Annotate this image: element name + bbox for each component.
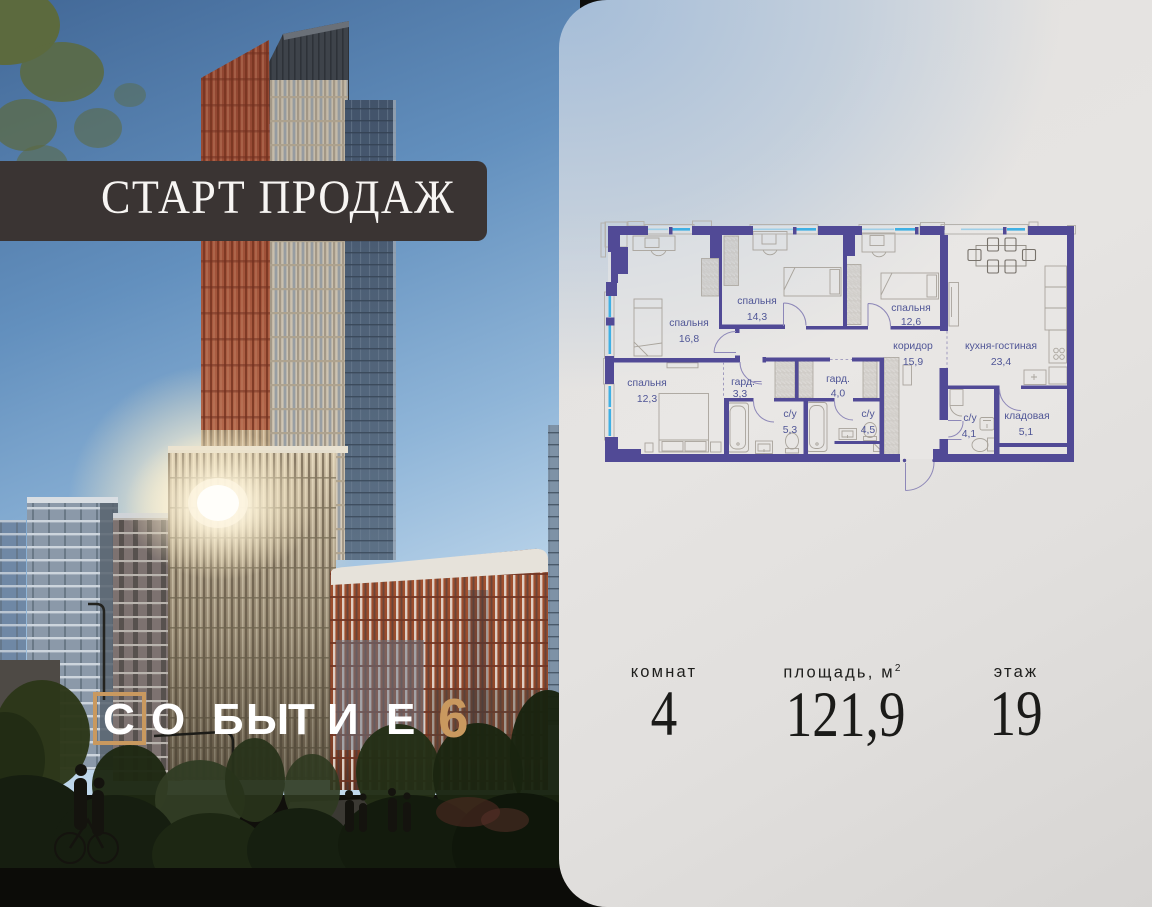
- svg-text:4,0: 4,0: [831, 389, 846, 400]
- svg-text:спальня: спальня: [669, 318, 708, 329]
- svg-text:спальня: спальня: [737, 296, 776, 307]
- svg-text:с/у: с/у: [783, 409, 797, 420]
- svg-text:с/у: с/у: [963, 413, 977, 424]
- svg-text:5,1: 5,1: [1019, 427, 1034, 438]
- svg-text:4,1: 4,1: [962, 429, 977, 440]
- svg-text:гард.: гард.: [826, 374, 850, 385]
- svg-text:5,3: 5,3: [783, 425, 798, 436]
- svg-text:кладовая: кладовая: [1004, 411, 1049, 422]
- svg-text:16,8: 16,8: [679, 334, 699, 345]
- svg-text:12,6: 12,6: [901, 317, 921, 328]
- svg-text:спальня: спальня: [891, 303, 930, 314]
- svg-text:кухня-гостиная: кухня-гостиная: [965, 341, 1037, 352]
- svg-text:12,3: 12,3: [637, 394, 657, 405]
- svg-text:15,9: 15,9: [903, 357, 923, 368]
- svg-text:23,4: 23,4: [991, 357, 1011, 368]
- svg-text:с/у: с/у: [861, 409, 875, 420]
- svg-text:спальня: спальня: [627, 378, 666, 389]
- svg-text:4,5: 4,5: [861, 425, 876, 436]
- svg-text:коридор: коридор: [893, 341, 933, 352]
- svg-text:3,3: 3,3: [733, 389, 748, 400]
- svg-text:гард.: гард.: [731, 377, 755, 388]
- svg-text:14,3: 14,3: [747, 312, 767, 323]
